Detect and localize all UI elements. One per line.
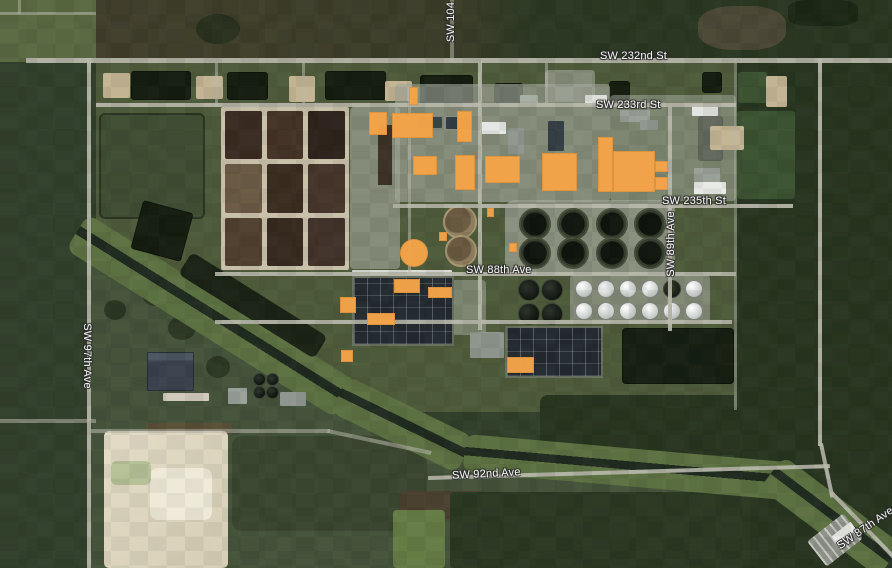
- storage-tank: [641, 280, 659, 298]
- highlighted-building-footprint[interactable]: [428, 287, 452, 298]
- building: [640, 120, 658, 130]
- tree-cluster: [104, 300, 126, 320]
- tree-cluster: [196, 14, 240, 44]
- digester-tank: [253, 386, 266, 399]
- digester-tank: [266, 386, 279, 399]
- storage-tank: [597, 302, 615, 320]
- storage-tank: [663, 280, 681, 298]
- plant-road-vertical: [302, 62, 305, 105]
- digester-tank: [541, 279, 563, 301]
- highlighted-building-footprint[interactable]: [507, 357, 534, 373]
- highlighted-building-footprint[interactable]: [367, 313, 395, 325]
- highlighted-building-footprint[interactable]: [340, 297, 356, 313]
- dark-grove: [788, 0, 858, 26]
- equipment-pad: [710, 126, 744, 150]
- storage-tank: [641, 302, 659, 320]
- retention-pond: [702, 72, 722, 93]
- highlighted-building-footprint[interactable]: [457, 111, 472, 142]
- drying-bed: [267, 218, 304, 266]
- street-label-sw-89th: SW 89th Ave: [626, 238, 716, 250]
- highlighted-building-footprint[interactable]: [598, 137, 613, 192]
- highlighted-building-footprint[interactable]: [655, 177, 668, 190]
- plant-road-vertical: [545, 62, 548, 105]
- retention-pond: [325, 71, 386, 100]
- highlighted-building-footprint[interactable]: [509, 243, 517, 252]
- road-east-boundary: [818, 58, 822, 446]
- building: [470, 332, 504, 358]
- trail: [18, 0, 21, 14]
- highlighted-building-footprint[interactable]: [394, 279, 420, 293]
- drying-bed: [225, 111, 262, 159]
- highlighted-building-footprint[interactable]: [392, 113, 433, 138]
- road-west-spur: [0, 419, 96, 423]
- storage-tank: [685, 302, 703, 320]
- storage-tank: [575, 280, 593, 298]
- highlighted-building-footprint[interactable]: [485, 156, 520, 183]
- grass-field: [0, 0, 96, 62]
- algae-patch: [111, 461, 151, 485]
- storage-tank: [685, 280, 703, 298]
- highlighted-building-footprint[interactable]: [487, 208, 494, 217]
- highlighted-building-footprint[interactable]: [655, 161, 668, 172]
- street-label-sw-235th: SW 235th St: [662, 195, 726, 207]
- dark-field: [450, 492, 750, 568]
- drying-bed: [267, 164, 304, 212]
- sand-pit-bright-area: [150, 468, 212, 520]
- drying-bed: [267, 111, 304, 159]
- highlighted-building-footprint[interactable]: [542, 153, 577, 191]
- highlighted-building-footprint[interactable]: [413, 156, 437, 175]
- highlighted-building-footprint[interactable]: [455, 155, 475, 190]
- drying-bed: [308, 218, 345, 266]
- digester-tank: [266, 373, 279, 386]
- street-label-sw-88th: SW 88th Ave: [466, 264, 532, 276]
- sand-pad: [196, 76, 223, 99]
- trail: [0, 12, 96, 15]
- drying-bed: [308, 164, 345, 212]
- sand-pad: [103, 73, 130, 98]
- brown-clearing: [698, 6, 786, 50]
- green-pond: [737, 71, 768, 104]
- plant-road: [215, 320, 732, 324]
- clarifier-tank: [557, 237, 589, 269]
- street-label-sw-104: SW 104: [426, 16, 476, 28]
- highlighted-building-footprint[interactable]: [439, 232, 447, 241]
- plant-pond: [622, 328, 734, 384]
- digester-tank: [518, 279, 540, 301]
- storage-tank: [619, 302, 637, 320]
- plant-road-vertical: [215, 62, 218, 107]
- building: [508, 128, 524, 154]
- building: [694, 182, 726, 194]
- shed-row: [163, 393, 209, 401]
- road-sw-232nd-st: [26, 58, 892, 63]
- satellite-map-canvas[interactable]: SW 104 SW 232nd St SW 233rd St SW 235th …: [0, 0, 892, 568]
- street-label-sw-97th: SW 97th Ave: [42, 350, 132, 362]
- highlighted-building-footprint[interactable]: [341, 350, 353, 362]
- clarifier-tank: [519, 208, 551, 240]
- clarifier-tank: [445, 235, 477, 267]
- drying-bed: [225, 218, 262, 266]
- plant-boundary-road: [734, 58, 737, 410]
- highlighted-building-footprint[interactable]: [400, 239, 428, 267]
- clarifier-tank: [557, 208, 589, 240]
- storage-tank: [575, 302, 593, 320]
- plant-pavement: [395, 84, 610, 202]
- forest-west: [0, 62, 96, 568]
- storage-tank: [619, 280, 637, 298]
- bright-green-field: [393, 510, 445, 568]
- sludge-drying-beds: [221, 107, 349, 270]
- retention-pond: [131, 71, 191, 100]
- building: [480, 122, 506, 134]
- retention-pond: [227, 72, 268, 100]
- highlighted-building-footprint[interactable]: [369, 112, 387, 135]
- drying-bed: [225, 164, 262, 212]
- building: [280, 392, 306, 406]
- clarifier-tank: [443, 205, 477, 239]
- tree-cluster: [206, 356, 230, 378]
- pit-access-road: [90, 429, 330, 433]
- highlighted-building-footprint[interactable]: [409, 87, 418, 105]
- building: [694, 168, 720, 182]
- clarifier-tank: [596, 237, 628, 269]
- large-green-pond: [736, 110, 796, 200]
- street-label-sw-233rd: SW 233rd St: [596, 99, 661, 111]
- highlighted-building-footprint[interactable]: [613, 151, 655, 192]
- digester-tank: [253, 373, 266, 386]
- sand-pad: [766, 76, 787, 107]
- drying-bed: [308, 111, 345, 159]
- building: [228, 388, 247, 404]
- storage-tank: [597, 280, 615, 298]
- road-sw-235th-st: [393, 204, 793, 208]
- storage-tank: [663, 302, 681, 320]
- clarifier-tank: [634, 208, 666, 240]
- clarifier-tank: [596, 208, 628, 240]
- warehouse: [147, 352, 194, 391]
- building: [548, 121, 564, 151]
- plant-road-vertical: [478, 62, 482, 330]
- street-label-sw-232nd: SW 232nd St: [600, 50, 667, 62]
- road-sw-97th-ave: [87, 58, 91, 568]
